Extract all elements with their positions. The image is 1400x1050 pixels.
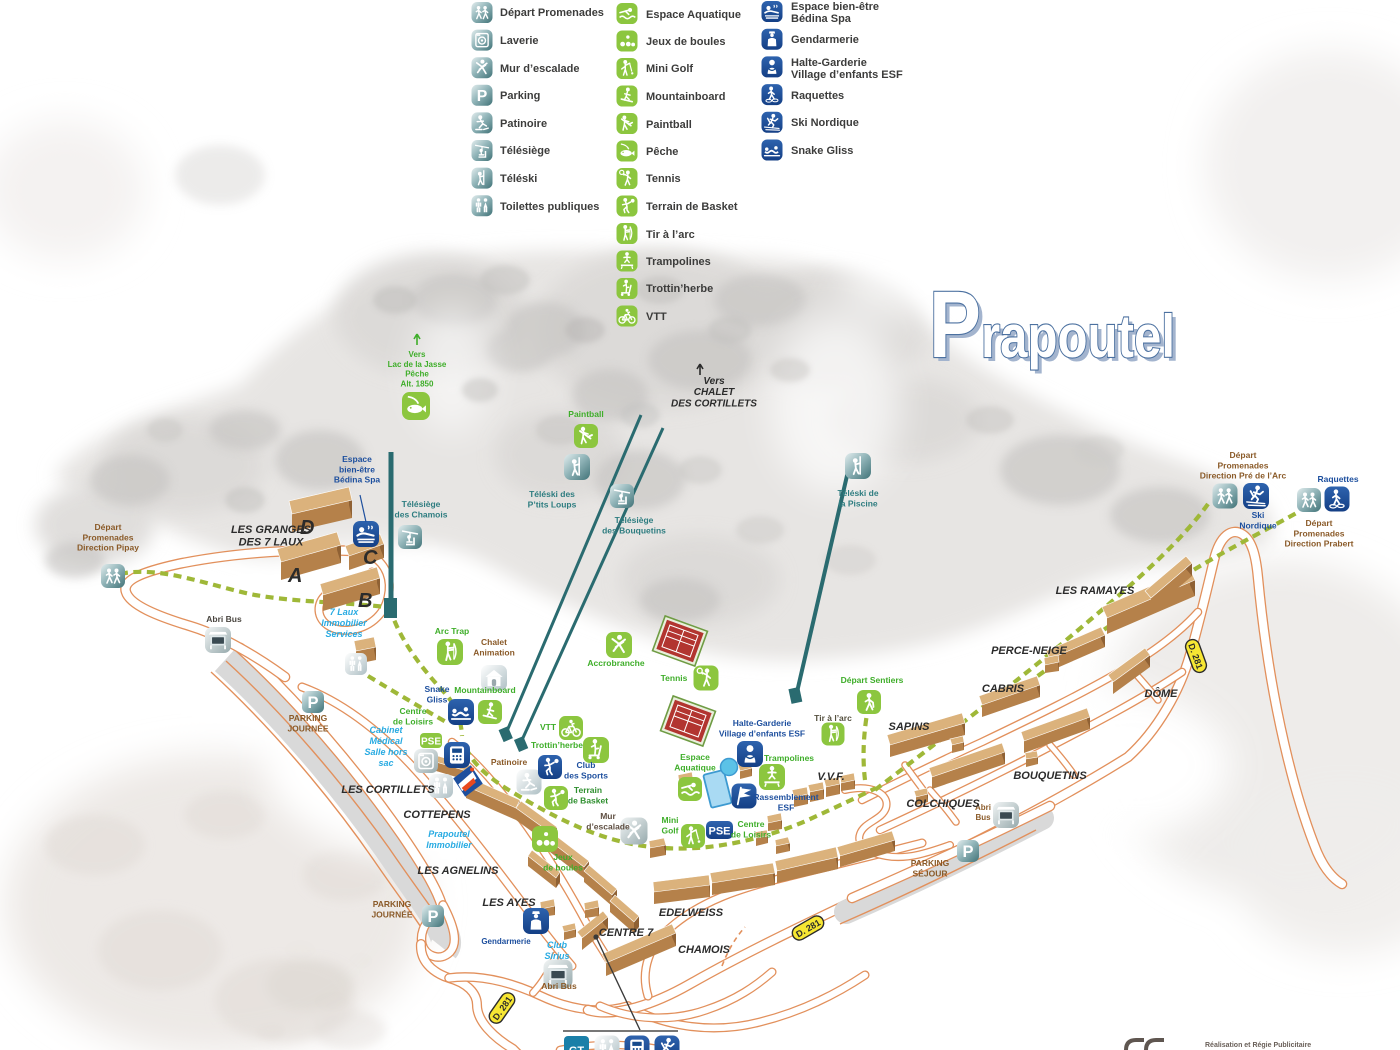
svg-text:P: P <box>477 88 488 105</box>
svg-text:Aquatique: Aquatique <box>674 762 716 772</box>
svg-text:Lac de la Jasse: Lac de la Jasse <box>388 360 447 369</box>
svg-text:Mur: Mur <box>600 811 616 821</box>
svg-text:PARKING: PARKING <box>289 713 328 723</box>
svg-text:Arc Trap: Arc Trap <box>435 626 470 636</box>
svg-text:P: P <box>962 843 973 861</box>
svg-text:de Loisirs: de Loisirs <box>731 829 771 839</box>
svg-text:Départ: Départ <box>1306 518 1333 528</box>
svg-text:Départ Promenades: Départ Promenades <box>500 7 604 19</box>
svg-text:bien-être: bien-être <box>339 464 375 474</box>
svg-text:Trampolines: Trampolines <box>646 256 711 268</box>
svg-text:VTT: VTT <box>540 722 557 732</box>
svg-text:Trottin’herbe: Trottin’herbe <box>646 283 713 295</box>
svg-text:Trottin’herbe: Trottin’herbe <box>531 740 583 750</box>
svg-text:Mini: Mini <box>662 815 679 825</box>
svg-text:JOURNÉE: JOURNÉE <box>287 723 328 733</box>
svg-text:Terrain de Basket: Terrain de Basket <box>646 201 738 213</box>
svg-text:COLCHIQUES: COLCHIQUES <box>906 798 980 810</box>
svg-text:Jeux de boules: Jeux de boules <box>646 36 725 48</box>
svg-text:Halte-Garderie: Halte-Garderie <box>791 57 867 69</box>
svg-text:des Sports: des Sports <box>564 770 608 780</box>
svg-text:CHAMOIS: CHAMOIS <box>678 944 731 956</box>
svg-text:Télésiège: Télésiège <box>402 499 441 509</box>
svg-text:Accrobranche: Accrobranche <box>587 658 644 668</box>
svg-text:Terrain: Terrain <box>574 785 602 795</box>
svg-text:Laverie: Laverie <box>500 35 539 47</box>
svg-text:PSE: PSE <box>421 737 441 748</box>
svg-text:CABRIS: CABRIS <box>982 683 1025 695</box>
svg-text:SAPINS: SAPINS <box>889 721 931 733</box>
svg-text:DES CORTILLETS: DES CORTILLETS <box>671 398 757 409</box>
svg-text:Promenades: Promenades <box>1217 460 1268 470</box>
svg-text:des Bouquetins: des Bouquetins <box>602 525 666 535</box>
svg-text:D: D <box>300 517 314 539</box>
svg-text:Snake: Snake <box>424 684 449 694</box>
svg-text:Gliss: Gliss <box>427 694 448 704</box>
svg-text:A: A <box>287 565 302 587</box>
svg-text:de Basket: de Basket <box>568 795 608 805</box>
svg-text:Espace Aquatique: Espace Aquatique <box>646 9 741 21</box>
svg-text:de boules: de boules <box>543 862 583 872</box>
svg-text:d’escalade: d’escalade <box>586 821 630 831</box>
svg-text:Réalisation et Régie Publicita: Réalisation et Régie Publicitaire <box>1205 1042 1311 1049</box>
svg-text:Départ Sentiers: Départ Sentiers <box>841 675 904 685</box>
svg-text:Bus: Bus <box>975 813 991 822</box>
svg-text:Patinoire: Patinoire <box>491 757 528 767</box>
svg-text:Sirius: Sirius <box>544 951 569 961</box>
svg-text:Direction Prabert: Direction Prabert <box>1285 539 1354 549</box>
svg-text:Direction Pré de l’Arc: Direction Pré de l’Arc <box>1200 471 1287 481</box>
svg-text:Raquettes: Raquettes <box>1317 474 1358 484</box>
svg-text:Vers: Vers <box>409 350 426 359</box>
svg-text:Tennis: Tennis <box>661 673 688 683</box>
svg-text:P: P <box>307 694 318 712</box>
svg-text:Télésiège: Télésiège <box>615 515 654 525</box>
svg-text:Chalet: Chalet <box>481 637 507 647</box>
svg-text:Mini Golf: Mini Golf <box>646 63 693 75</box>
svg-text:Télésiège: Télésiège <box>500 145 550 157</box>
svg-text:Tennis: Tennis <box>646 173 681 185</box>
svg-text:7 Laux: 7 Laux <box>330 607 360 617</box>
svg-text:Gendarmerie: Gendarmerie <box>481 937 531 946</box>
svg-text:LES AYES: LES AYES <box>482 897 536 909</box>
svg-text:GT: GT <box>569 1045 585 1050</box>
svg-text:Salle hors: Salle hors <box>364 747 407 757</box>
svg-text:de Loisirs: de Loisirs <box>393 716 433 726</box>
svg-text:Bédina Spa: Bédina Spa <box>334 475 381 485</box>
svg-text:PERCE-NEIGE: PERCE-NEIGE <box>991 645 1067 657</box>
svg-text:des Chamois: des Chamois <box>395 509 448 519</box>
svg-text:P: P <box>427 908 438 926</box>
svg-text:Tir à l’arc: Tir à l’arc <box>646 229 695 241</box>
svg-text:Vers: Vers <box>703 376 725 387</box>
svg-text:Rassemblement: Rassemblement <box>753 792 818 802</box>
svg-text:SÉJOUR: SÉJOUR <box>913 868 948 878</box>
svg-text:Espace: Espace <box>342 454 372 464</box>
svg-text:VTT: VTT <box>646 311 667 323</box>
svg-text:Raquettes: Raquettes <box>791 90 844 102</box>
svg-text:Golf: Golf <box>662 825 679 835</box>
svg-text:PARKING: PARKING <box>911 858 950 868</box>
svg-text:Départ: Départ <box>95 522 122 532</box>
svg-text:LES CORTILLETS: LES CORTILLETS <box>341 784 435 796</box>
svg-text:PSE: PSE <box>708 826 730 838</box>
svg-text:P’tits Loups: P’tits Loups <box>528 499 577 509</box>
svg-text:Nordique: Nordique <box>1239 520 1277 530</box>
svg-text:Animation: Animation <box>473 647 515 657</box>
svg-text:Trampolines: Trampolines <box>764 753 814 763</box>
svg-text:Centre: Centre <box>738 819 765 829</box>
svg-text:Immobilier: Immobilier <box>321 618 367 628</box>
svg-text:Club: Club <box>577 760 596 770</box>
svg-text:C: C <box>363 547 378 569</box>
svg-text:Mountainboard: Mountainboard <box>646 91 725 103</box>
svg-text:Ski: Ski <box>1252 510 1265 520</box>
svg-text:EDELWEISS: EDELWEISS <box>659 907 724 919</box>
svg-text:Promenades: Promenades <box>1293 528 1344 538</box>
svg-text:Abri Bus: Abri Bus <box>206 614 242 624</box>
svg-text:LES RAMAYES: LES RAMAYES <box>1056 585 1135 597</box>
svg-text:Téléski des: Téléski des <box>529 489 575 499</box>
svg-text:B: B <box>358 590 372 612</box>
svg-text:Bédina Spa: Bédina Spa <box>791 13 852 25</box>
svg-text:JOURNÉE: JOURNÉE <box>371 909 412 919</box>
svg-text:Ski Nordique: Ski Nordique <box>791 117 859 129</box>
svg-text:Halte-Garderie: Halte-Garderie <box>733 718 792 728</box>
svg-text:Jeux: Jeux <box>553 852 573 862</box>
svg-text:Paintball: Paintball <box>646 119 692 131</box>
svg-text:ESF: ESF <box>778 802 795 812</box>
svg-text:Cabinet: Cabinet <box>369 725 403 735</box>
svg-text:Immobilier: Immobilier <box>426 840 472 850</box>
svg-text:Espace: Espace <box>680 752 710 762</box>
svg-text:Village d’enfants ESF: Village d’enfants ESF <box>791 69 903 81</box>
svg-text:Services: Services <box>325 629 362 639</box>
svg-text:Centre: Centre <box>400 706 427 716</box>
svg-text:Départ: Départ <box>1230 450 1257 460</box>
svg-text:Toilettes publiques: Toilettes publiques <box>500 201 599 213</box>
svg-text:Parking: Parking <box>500 90 540 102</box>
svg-text:V.V.F.: V.V.F. <box>817 771 844 783</box>
svg-text:Pêche: Pêche <box>646 146 678 158</box>
svg-text:Village d’enfants ESF: Village d’enfants ESF <box>719 728 805 738</box>
svg-text:COTTEPENS: COTTEPENS <box>403 809 471 821</box>
svg-text:Patinoire: Patinoire <box>500 118 547 130</box>
svg-text:BOUQUETINS: BOUQUETINS <box>1013 770 1087 782</box>
svg-text:Téléski de: Téléski de <box>837 488 878 498</box>
svg-text:Direction Pipay: Direction Pipay <box>77 543 139 553</box>
svg-text:Médical: Médical <box>369 736 403 746</box>
svg-text:LES AGNELINS: LES AGNELINS <box>418 865 500 877</box>
svg-text:Téléski: Téléski <box>500 173 537 185</box>
svg-text:la Piscine: la Piscine <box>838 498 877 508</box>
svg-text:sac: sac <box>378 758 393 768</box>
svg-text:Tir à l’arc: Tir à l’arc <box>814 713 852 723</box>
svg-text:CENTRE 7: CENTRE 7 <box>599 927 654 939</box>
svg-text:Mountainboard: Mountainboard <box>454 685 515 695</box>
svg-text:CHALET: CHALET <box>694 387 735 398</box>
svg-text:Prapoutel: Prapoutel <box>428 829 470 839</box>
svg-text:Gendarmerie: Gendarmerie <box>791 34 859 46</box>
svg-text:PARKING: PARKING <box>373 899 412 909</box>
svg-text:Snake Gliss: Snake Gliss <box>791 145 853 157</box>
svg-text:DÔME: DÔME <box>1145 687 1179 700</box>
svg-text:Pêche: Pêche <box>405 370 429 379</box>
svg-text:Abri Bus: Abri Bus <box>541 981 577 991</box>
svg-text:Promenades: Promenades <box>82 532 133 542</box>
svg-text:Paintball: Paintball <box>568 409 603 419</box>
svg-text:Alt. 1850: Alt. 1850 <box>401 379 434 388</box>
svg-text:Espace bien-être: Espace bien-être <box>791 1 879 13</box>
svg-text:DES 7 LAUX: DES 7 LAUX <box>239 536 304 548</box>
svg-text:Mur d’escalade: Mur d’escalade <box>500 63 579 75</box>
svg-text:Club: Club <box>547 940 567 950</box>
